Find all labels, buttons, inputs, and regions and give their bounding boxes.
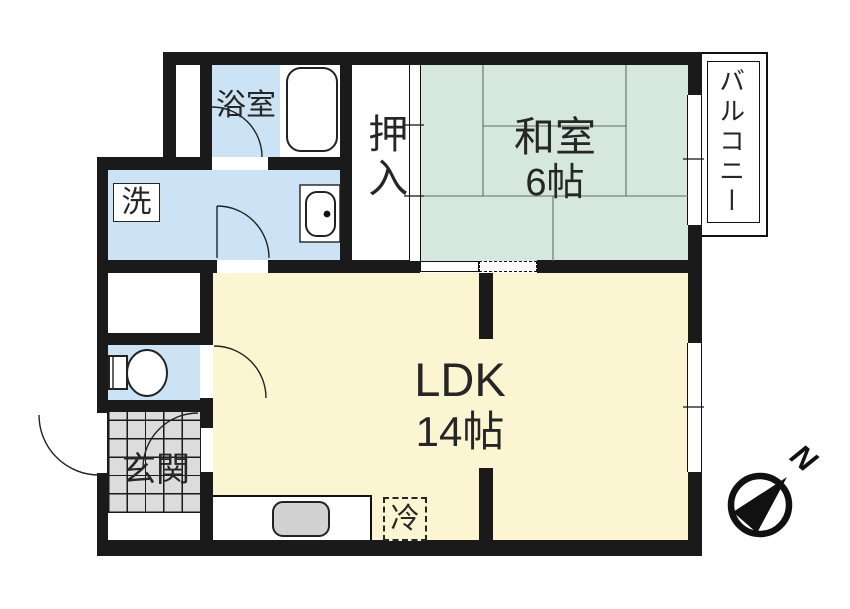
refrigerator-label: 冷	[390, 502, 419, 536]
japanese-room-name: 和室	[455, 113, 655, 161]
bathtub-area	[280, 65, 340, 157]
ldk-size: 14帖	[355, 407, 565, 457]
entrance-label: 玄関	[119, 450, 193, 490]
wall-right-b	[688, 225, 702, 343]
ldk-name: LDK	[355, 352, 565, 407]
bathroom-label: 浴室	[206, 88, 286, 123]
kitchen-counter	[213, 495, 372, 540]
compass-north-label: N	[784, 437, 824, 479]
washroom-label: 洗	[122, 185, 152, 220]
wall-nw-vertical	[163, 52, 176, 170]
wall-mid-horizontal-c	[537, 260, 700, 273]
storage-room	[108, 273, 200, 333]
wall-bottom	[97, 540, 702, 556]
wall-toilet-south	[97, 400, 213, 412]
japanese-room-window	[687, 95, 702, 225]
entrance-outer-door-arc	[39, 415, 99, 475]
japanese-room-size: 6帖	[455, 161, 655, 206]
wall-ldk-stub-bottom	[479, 468, 493, 542]
wall-leftcol-east-c	[200, 472, 213, 542]
wall-closet-west	[340, 52, 352, 273]
compass-icon: N	[731, 437, 824, 534]
ldk-window	[687, 343, 702, 472]
wall-left-upper	[97, 157, 108, 413]
ldk-label: LDK 14帖	[355, 352, 565, 457]
wall-storage-north	[97, 333, 213, 345]
wall-bath-south-left	[97, 157, 212, 170]
utility-space	[175, 65, 200, 157]
washroom-label-box: 洗	[113, 183, 160, 222]
japanese-room-label: 和室 6帖	[455, 113, 655, 206]
wall-right-a	[688, 52, 702, 95]
entrance-step	[108, 513, 200, 542]
wall-top	[163, 52, 702, 65]
refrigerator-space: 冷	[383, 497, 427, 541]
wall-ldk-stub-top	[479, 273, 493, 339]
wall-right-c	[688, 472, 702, 542]
sliding-door-panel-dashed	[479, 261, 537, 272]
toilet-room	[108, 345, 200, 400]
wall-mid-horizontal-b	[268, 260, 420, 273]
wall-mid-horizontal-a	[97, 260, 217, 273]
floorplan: 冷	[0, 0, 850, 609]
sliding-door-panel	[420, 261, 479, 272]
balcony-label: バルコニー	[715, 67, 746, 217]
closet-label: 押入	[360, 113, 407, 201]
closet-fusuma-door	[409, 65, 421, 261]
